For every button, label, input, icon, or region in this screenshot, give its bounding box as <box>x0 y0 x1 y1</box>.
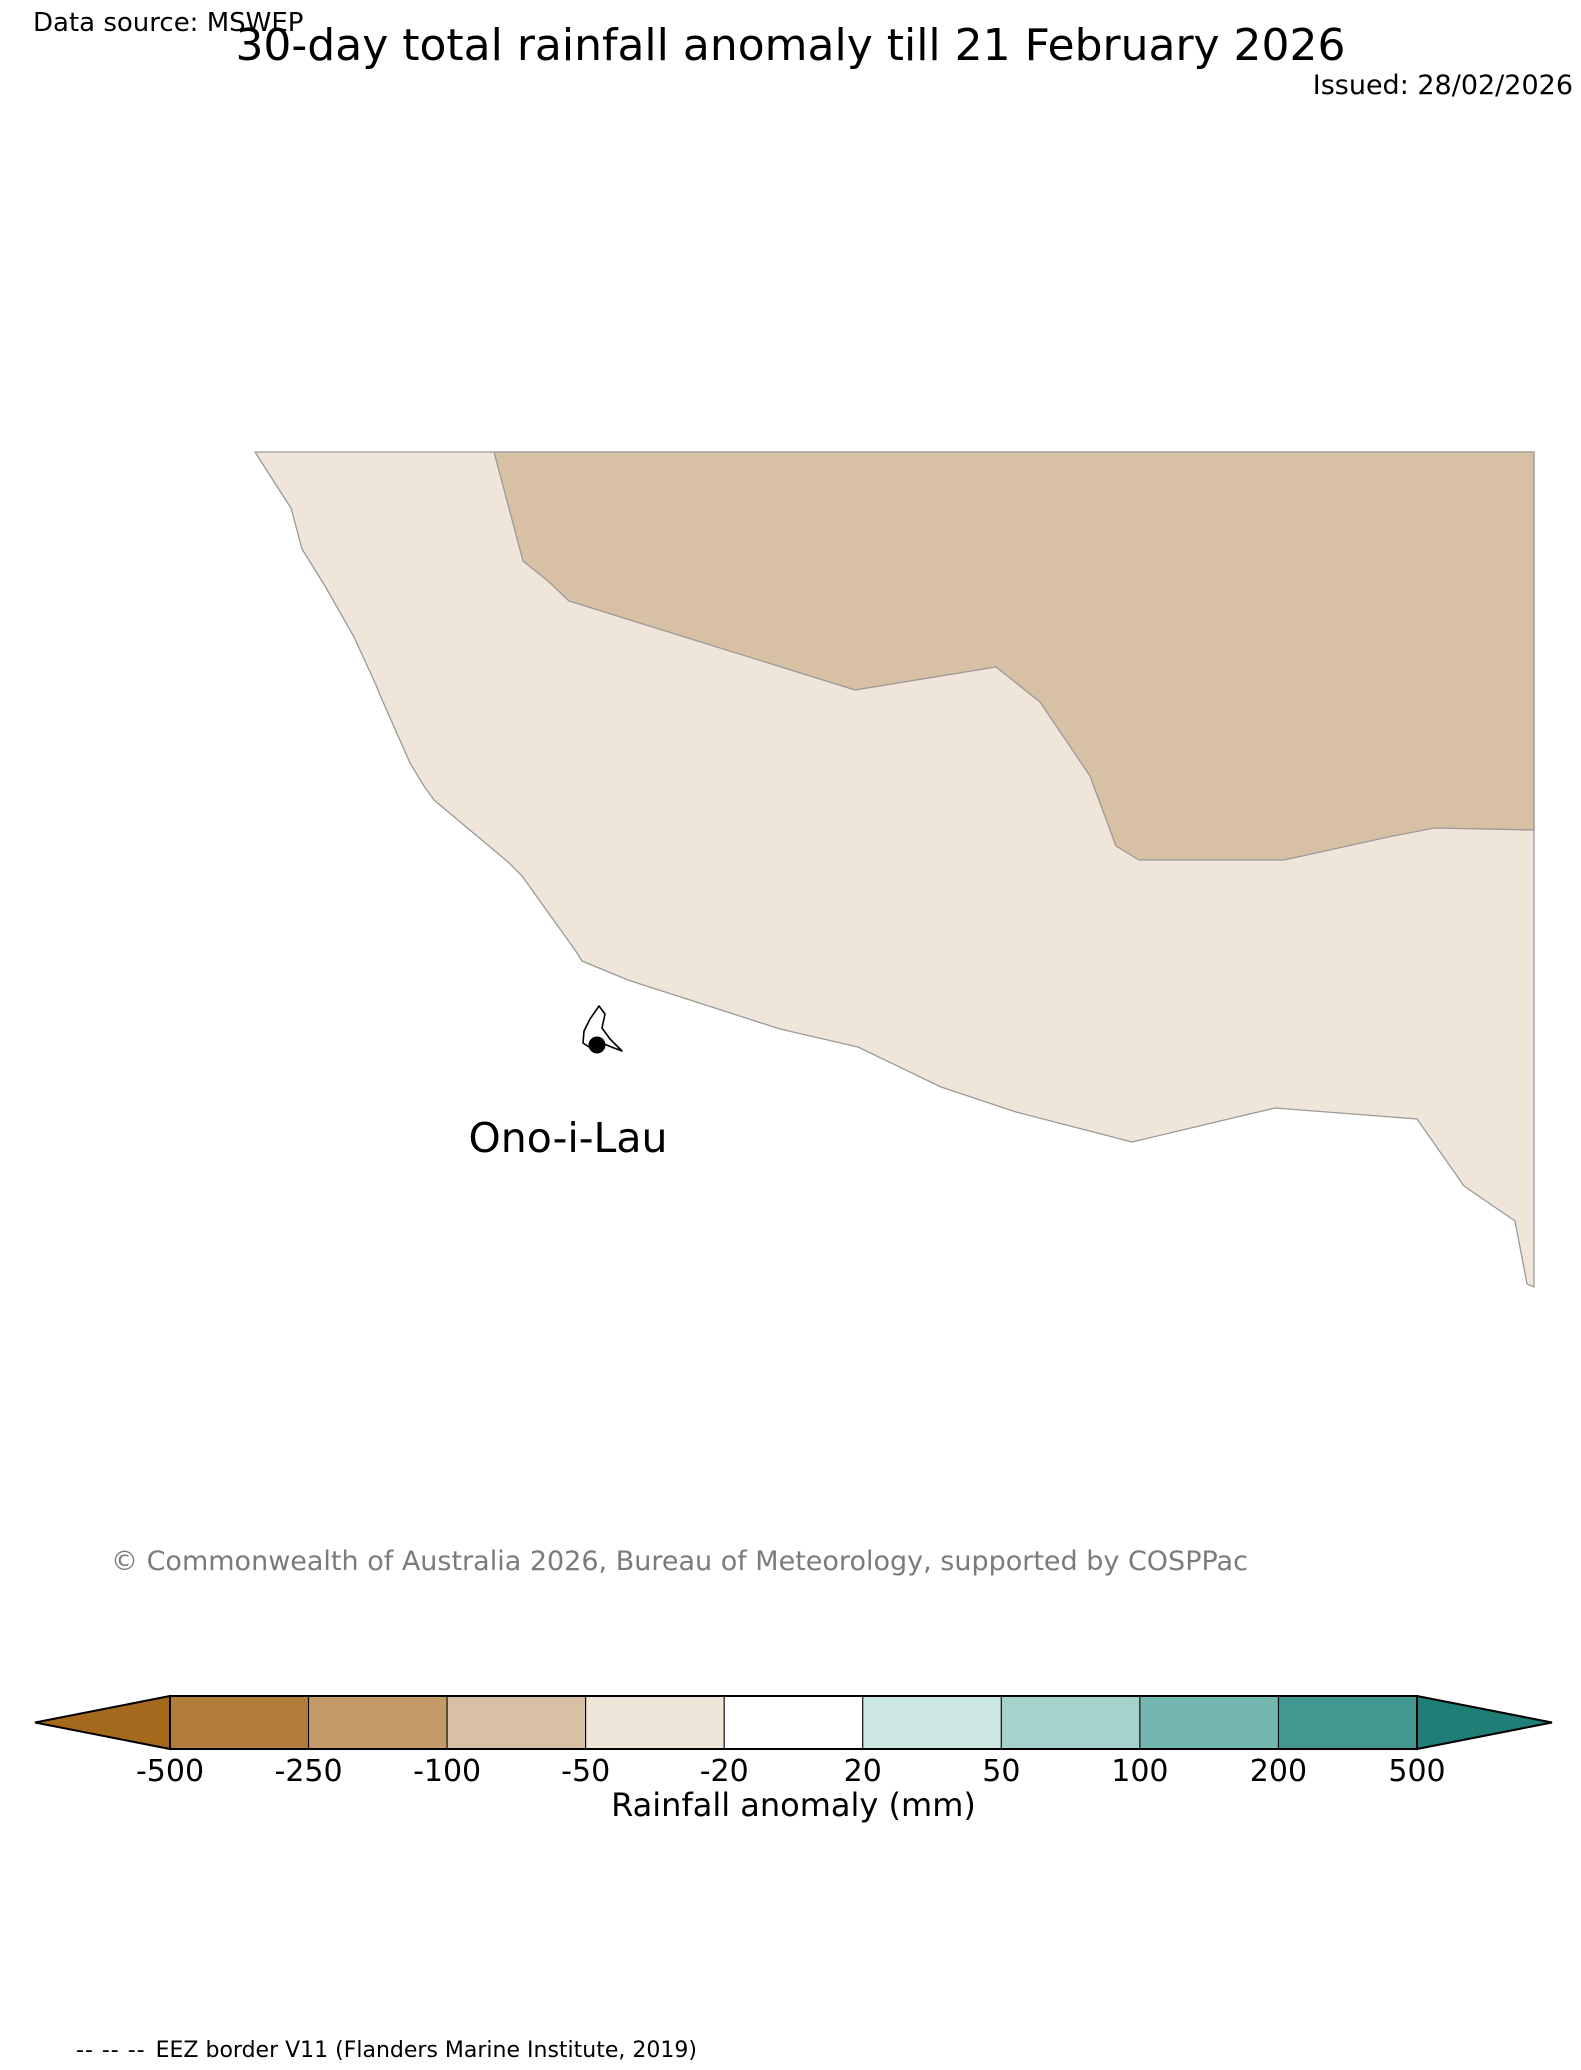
colorbar-tick-50: 50 <box>931 1754 1071 1789</box>
colorbar-graphic <box>35 1696 1552 1749</box>
colorbar-tick--100: -100 <box>377 1754 517 1789</box>
colorbar-tick--50: -50 <box>516 1754 656 1789</box>
colorbar-segment--20-to-20 <box>724 1696 863 1749</box>
map-marker-group <box>583 1006 622 1054</box>
colorbar-left-arrow <box>35 1696 170 1749</box>
colorbar-tick-500: 500 <box>1347 1754 1487 1789</box>
colorbar-tick-200: 200 <box>1208 1754 1348 1789</box>
place-label-ono-i-lau: Ono-i-Lau <box>418 1114 718 1162</box>
colorbar-tick-100: 100 <box>1070 1754 1210 1789</box>
colorbar-segment-100-to-200 <box>1140 1696 1279 1749</box>
colorbar-segment--50-to--20 <box>586 1696 725 1749</box>
eez-legend-text: EEZ border V11 (Flanders Marine Institut… <box>156 2038 697 2063</box>
issued-date-label: Issued: 28/02/2026 <box>1313 70 1573 101</box>
colorbar-segment--250-to--100 <box>309 1696 448 1749</box>
colorbar-segment-200-to-500 <box>1278 1696 1417 1749</box>
eez-border-legend: -- -- --EEZ border V11 (Flanders Marine … <box>76 2038 697 2063</box>
copyright-notice: © Commonwealth of Australia 2026, Bureau… <box>111 1546 1248 1577</box>
page-title: 30-day total rainfall anomaly till 21 Fe… <box>0 20 1581 71</box>
colorbar-axis-label: Rainfall anomaly (mm) <box>170 1786 1417 1824</box>
location-marker-dot <box>589 1037 606 1054</box>
colorbar-segment--500-to--250 <box>170 1696 309 1749</box>
colorbar-segment--100-to--50 <box>447 1696 586 1749</box>
colorbar-segment-50-to-100 <box>1001 1696 1140 1749</box>
colorbar-tick--500: -500 <box>100 1754 240 1789</box>
eez-dashed-line-sample: -- -- -- <box>76 2038 146 2063</box>
colorbar-tick--20: -20 <box>654 1754 794 1789</box>
colorbar-segment-20-to-50 <box>863 1696 1002 1749</box>
colorbar-tick--250: -250 <box>239 1754 379 1789</box>
colorbar-tick-20: 20 <box>793 1754 933 1789</box>
colorbar-right-arrow <box>1417 1696 1552 1749</box>
rainfall-anomaly-map-page: Data source: MSWEP 30-day total rainfall… <box>0 0 1581 2070</box>
